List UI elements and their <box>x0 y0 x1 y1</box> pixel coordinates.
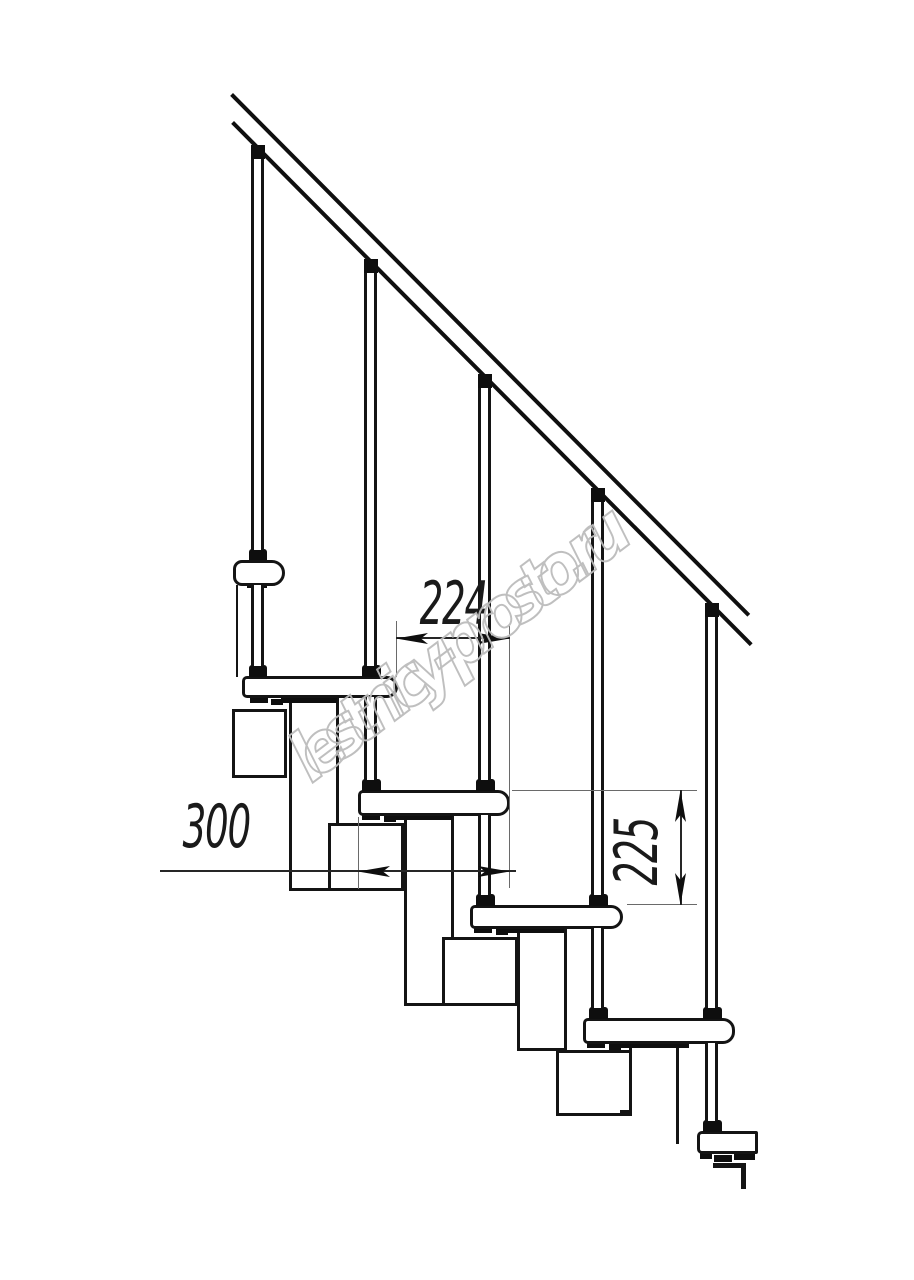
tread-3 <box>470 905 623 929</box>
baluster-4-foot <box>589 1007 608 1019</box>
baluster-1-lower <box>251 585 264 666</box>
baluster-5-upper <box>705 616 718 1008</box>
baluster-1-collar <box>249 549 267 560</box>
baluster-2-foot <box>362 779 381 791</box>
baluster-1-foot <box>249 665 267 677</box>
upper-tread-nose <box>233 560 285 586</box>
tread-5-partial <box>697 1131 758 1154</box>
extension-line <box>358 817 359 889</box>
support-module-q1 <box>328 823 404 891</box>
baluster-5-collar <box>703 1007 722 1019</box>
baluster-2-upper <box>364 271 377 666</box>
baluster-3-foot <box>476 894 495 906</box>
support-module-q0 <box>232 709 287 778</box>
baluster-1-upper <box>251 158 264 550</box>
baluster-4-lower <box>591 928 604 1008</box>
tread-4 <box>583 1018 735 1044</box>
baluster-5-foot <box>703 1120 722 1132</box>
support-module-n4-right-line <box>676 1047 679 1144</box>
tread-1 <box>242 676 398 698</box>
baluster-2-collar <box>362 665 381 677</box>
handrail-lower-line <box>231 121 752 646</box>
baluster-2-lower <box>364 697 377 780</box>
upper-flight-edge-line <box>236 585 238 677</box>
dimension-rise-label: 225 <box>610 792 664 912</box>
bolt-nub <box>714 1155 732 1162</box>
baluster-3-lower <box>478 815 491 895</box>
staircase-technical-drawing: 224 300 225 lestnicy-prosto.ru <box>0 0 914 1280</box>
baluster-5-lower <box>705 1043 718 1121</box>
extension-line <box>509 626 510 888</box>
baluster-3-collar <box>476 779 495 791</box>
tread-2 <box>358 790 510 816</box>
support-module-q2 <box>442 937 518 1006</box>
support-module-n5-right-line <box>741 1163 746 1189</box>
baluster-4-collar <box>589 894 608 906</box>
extension-line <box>512 790 697 791</box>
dimension-run-label: 224 <box>390 577 516 631</box>
dimension-depth-label: 300 <box>153 800 279 854</box>
support-module-n4-left-line <box>629 1047 632 1113</box>
support-module-n3 <box>517 928 567 1051</box>
dimension-line-depth <box>160 870 516 872</box>
support-module-n4-hook <box>620 1110 632 1114</box>
support-module-q3 <box>556 1050 632 1116</box>
